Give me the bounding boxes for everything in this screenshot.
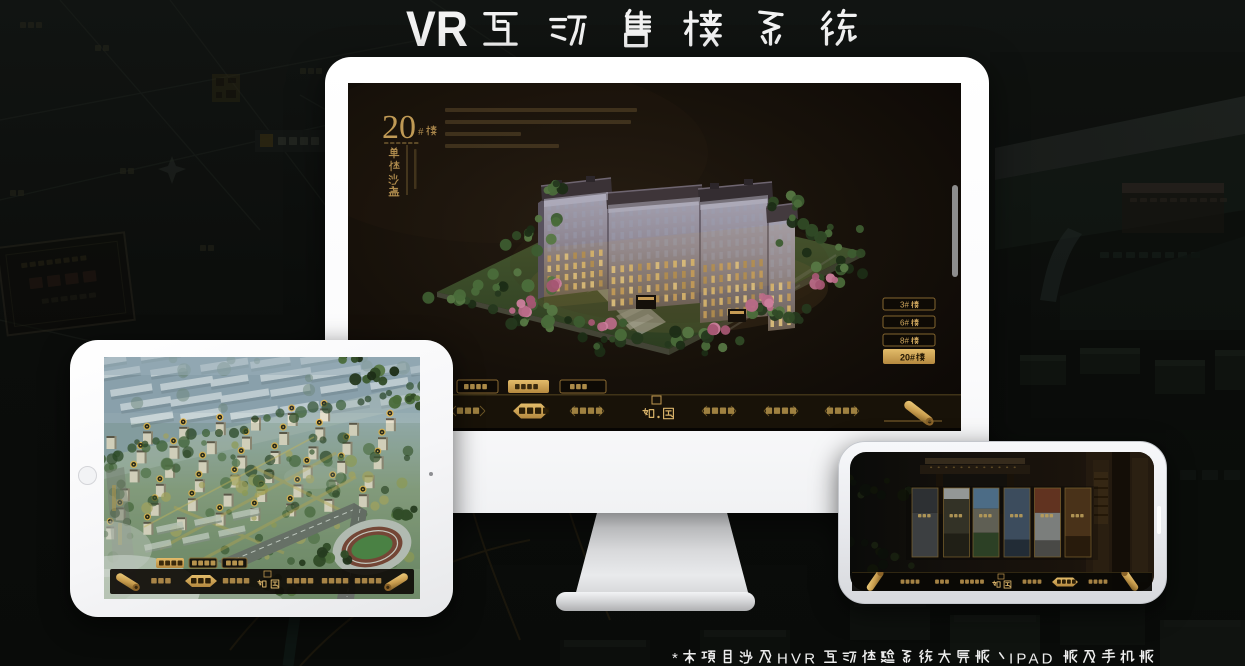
svg-text:8#: 8# (900, 337, 909, 346)
svg-text:3#: 3# (900, 301, 909, 310)
svg-text:VR: VR (406, 1, 468, 57)
svg-text:#: # (418, 126, 424, 138)
svg-text:*: * (672, 650, 678, 666)
svg-text:IPAD: IPAD (1009, 651, 1056, 666)
svg-text:20#: 20# (900, 353, 915, 363)
svg-text:HVR: HVR (777, 651, 818, 666)
svg-text:6#: 6# (900, 319, 909, 328)
svg-text:20: 20 (382, 109, 416, 146)
